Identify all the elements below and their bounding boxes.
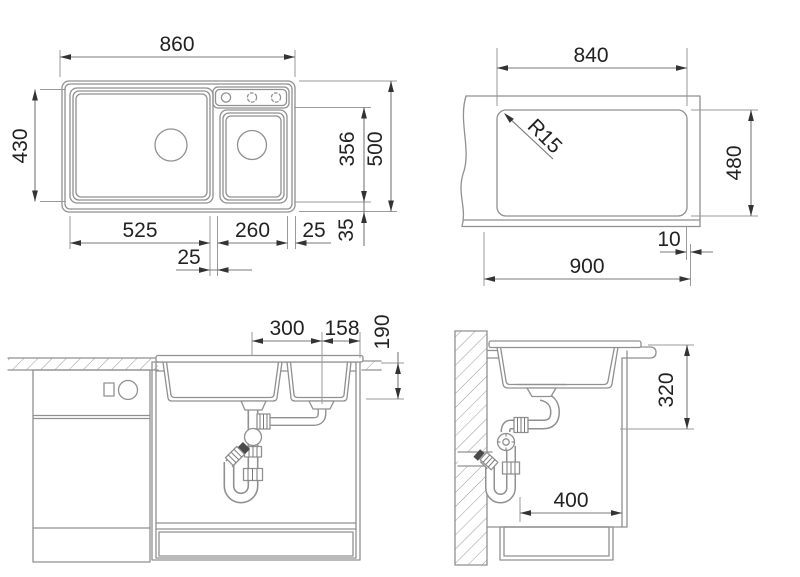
dim-bowl-depth: 190 [366,314,404,399]
dim-label: 158 [324,317,359,340]
side-section-view: 320 400 [455,331,694,565]
faucet-deck [213,87,289,108]
dim-label: 320 [655,372,678,407]
dim-label: 356 [336,131,359,166]
dim-cutout-width: 840 [497,44,687,106]
faucet-hole [221,93,230,102]
dim-label: 10 [657,228,680,251]
faucet-hole-optional [247,93,256,102]
small-bowl [220,110,287,203]
wall-section [455,331,492,565]
dim-bottom-edge: 35 [335,202,367,246]
dim-label: 25 [177,246,200,269]
page: 860 430 500 356 [0,0,800,577]
control-knob [119,381,138,400]
sink-outline [62,81,295,212]
dim-label: 500 [364,131,387,166]
faucet-hole-optional [271,93,280,102]
main-drain-flange [241,401,266,410]
sink-rim [156,356,363,363]
coupling-nut [514,418,528,433]
left-cabinet [33,370,150,562]
dim-clearance-width: 400 [520,489,622,522]
bowl-section [489,341,641,397]
dim-label: 525 [122,219,157,242]
ball-joint [245,429,262,446]
drain-plumbing [225,407,322,498]
shutoff-knob [498,434,515,451]
technical-drawing: 860 430 500 356 [0,0,800,577]
dim-small-bowl-width: 260 [218,216,288,276]
main-bowl [70,88,213,203]
dim-right-edge: 25 [296,216,332,249]
dim-label: 480 [723,145,746,180]
dim-label: 190 [371,314,394,349]
dim-label: 840 [573,44,608,67]
dim-label: 300 [269,317,304,340]
dim-label: 430 [9,128,32,163]
sink-top-view: 860 430 500 356 [9,33,397,276]
bowls-section [156,356,363,411]
dim-label: 25 [302,219,325,242]
break-line [461,96,466,227]
cutout-rect [497,110,687,216]
sink-rim [489,341,641,348]
dim-bowl-inner-depth: 356 [294,108,371,203]
dim-label: 260 [235,219,270,242]
dim-label: 900 [569,255,604,278]
coupling-nut [503,462,520,474]
coupling-nut [244,469,263,481]
coupling-nut [257,414,270,429]
dim-label: 35 [335,218,358,241]
dim-label: 860 [159,33,194,56]
dim-divider-offset: 25 [176,246,252,273]
small-drain [238,131,267,160]
front-section-view: 300 158 190 [8,314,404,562]
dim-label: R15 [523,115,567,159]
dim-label: 400 [553,489,588,512]
dim-cutout-depth: 480 [691,110,758,216]
dim-left-depth: 430 [9,90,66,202]
control-button [104,383,114,396]
drain-flange [527,388,556,397]
dim-overall-width: 860 [60,33,295,77]
main-drain [155,129,187,161]
dim-corner-radius: R15 [502,111,566,159]
cutout-view: R15 840 480 10 [461,44,758,286]
dim-drain-to-edge: 158 [322,317,360,358]
dim-edge-offset: 10 [657,226,713,286]
